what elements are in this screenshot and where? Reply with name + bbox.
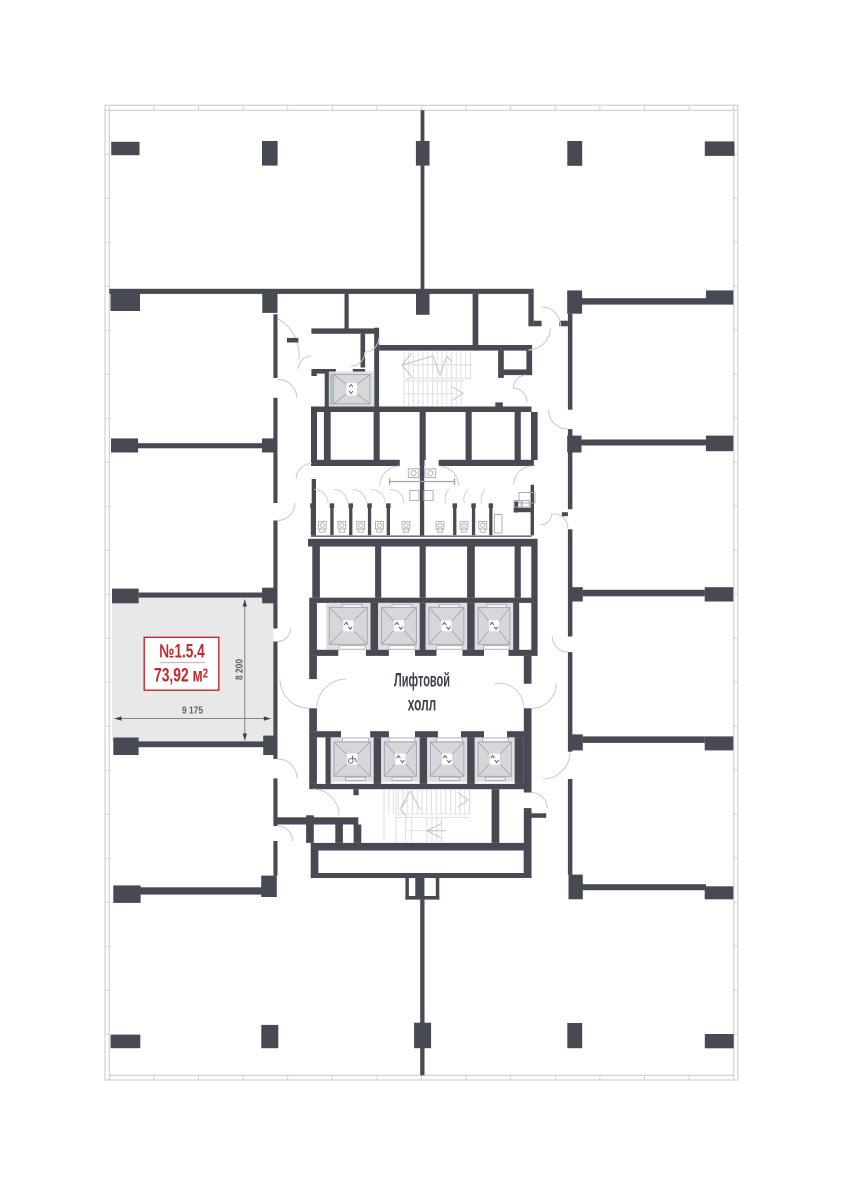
svg-text:№1.5.4: №1.5.4 <box>159 642 205 663</box>
svg-text:9 175: 9 175 <box>182 706 203 717</box>
svg-text:73,92 м2: 73,92 м2 <box>154 666 208 687</box>
svg-text:холл: холл <box>408 695 437 716</box>
svg-text:Лифтовой: Лифтовой <box>394 671 450 692</box>
svg-text:8 200: 8 200 <box>234 659 245 680</box>
